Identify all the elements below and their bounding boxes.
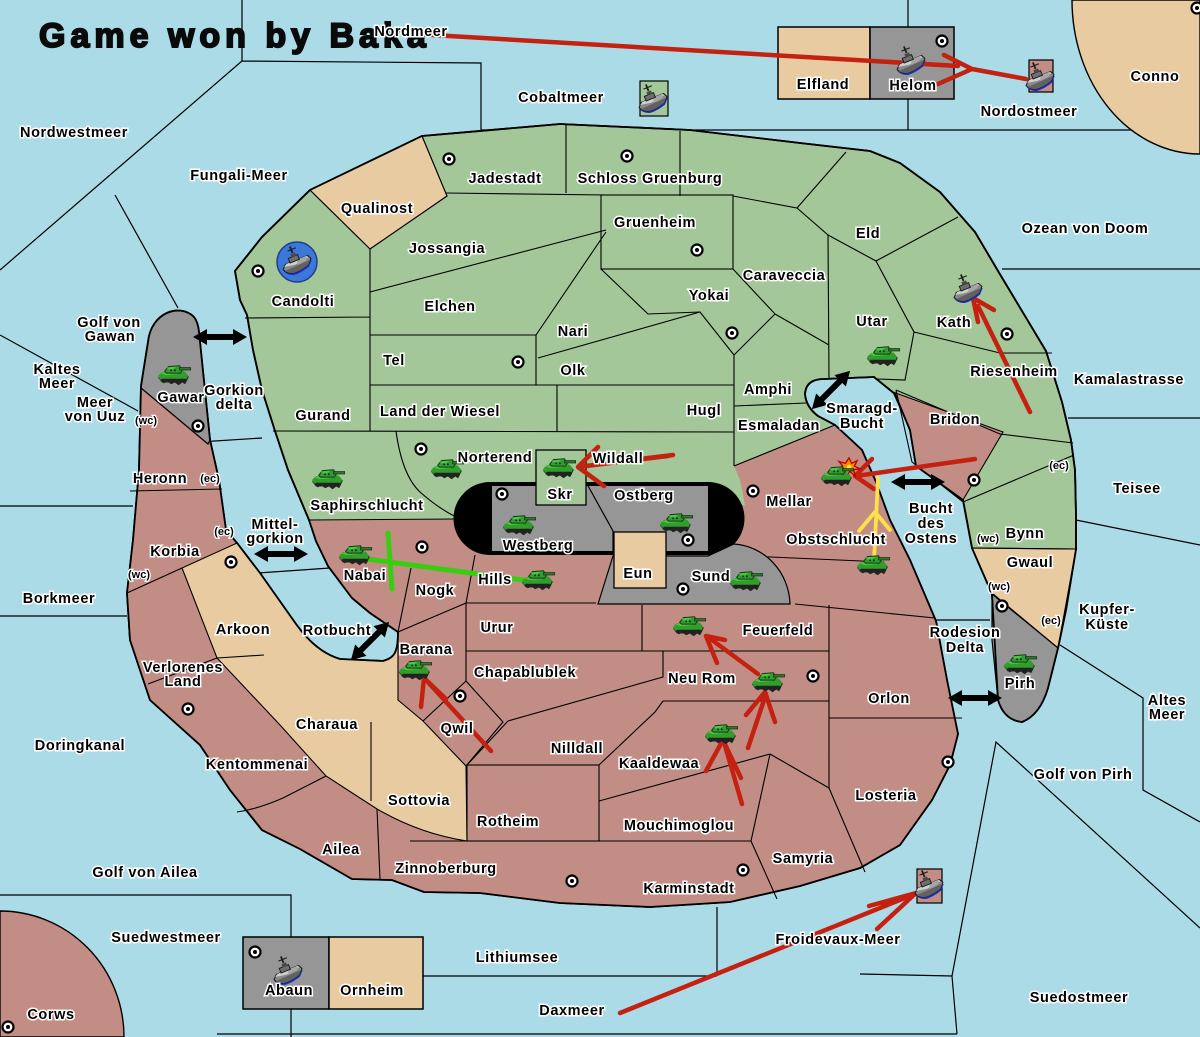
svg-text:gorkion: gorkion <box>246 531 303 547</box>
svg-text:Golf von Ailea: Golf von Ailea <box>92 865 198 881</box>
svg-text:Suedwestmeer: Suedwestmeer <box>111 930 221 946</box>
svg-text:Daxmeer: Daxmeer <box>539 1003 604 1019</box>
svg-text:Losteria: Losteria <box>855 788 917 804</box>
svg-text:Sund: Sund <box>692 569 731 585</box>
svg-text:Riesenheim: Riesenheim <box>970 364 1057 380</box>
svg-text:Elchen: Elchen <box>424 299 475 315</box>
svg-text:Yokai: Yokai <box>689 288 730 304</box>
svg-text:Nordostmeer: Nordostmeer <box>981 104 1078 120</box>
svg-text:Mouchimoglou: Mouchimoglou <box>624 818 734 834</box>
svg-text:(ec): (ec) <box>1049 460 1069 472</box>
svg-text:Nordwestmeer: Nordwestmeer <box>20 125 128 141</box>
svg-text:Kentommenai: Kentommenai <box>206 757 308 773</box>
svg-text:Kaaldewaa: Kaaldewaa <box>619 756 700 772</box>
svg-text:Olk: Olk <box>560 363 586 379</box>
svg-text:Norterend: Norterend <box>458 450 533 466</box>
svg-text:Teisee: Teisee <box>1113 481 1161 497</box>
svg-text:(wc): (wc) <box>988 581 1010 593</box>
svg-text:Obstschlucht: Obstschlucht <box>786 532 886 548</box>
svg-text:Conno: Conno <box>1131 69 1180 85</box>
svg-text:Land der Wiesel: Land der Wiesel <box>380 404 500 420</box>
svg-text:Chapablublek: Chapablublek <box>474 665 577 681</box>
svg-text:Amphi: Amphi <box>744 382 792 398</box>
svg-text:Qwil: Qwil <box>440 721 473 737</box>
svg-text:Esmaladan: Esmaladan <box>738 418 820 434</box>
svg-text:Gwaul: Gwaul <box>1007 555 1054 571</box>
svg-text:Küste: Küste <box>1085 617 1128 633</box>
svg-text:Utar: Utar <box>856 314 887 330</box>
svg-text:(ec): (ec) <box>1041 615 1061 627</box>
svg-text:Gurand: Gurand <box>295 408 350 424</box>
svg-text:Helom: Helom <box>889 78 936 94</box>
svg-text:Kath: Kath <box>937 315 972 331</box>
svg-text:Qualinost: Qualinost <box>341 201 413 217</box>
svg-text:Barana: Barana <box>400 642 453 658</box>
svg-text:Fungali-Meer: Fungali-Meer <box>190 168 287 184</box>
svg-text:Sottovia: Sottovia <box>388 793 450 809</box>
svg-text:Cobaltmeer: Cobaltmeer <box>518 90 604 106</box>
svg-text:Samyria: Samyria <box>773 851 834 867</box>
svg-text:des: des <box>918 516 945 532</box>
svg-text:Nari: Nari <box>558 324 589 340</box>
svg-text:Bucht: Bucht <box>909 501 953 517</box>
svg-text:Ozean von Doom: Ozean von Doom <box>1022 221 1149 237</box>
svg-text:Ostens: Ostens <box>905 531 958 547</box>
svg-text:Eld: Eld <box>856 226 880 242</box>
svg-text:(wc): (wc) <box>977 533 999 545</box>
svg-text:(wc): (wc) <box>128 569 150 581</box>
svg-text:Ailea: Ailea <box>322 842 360 858</box>
svg-text:Hills: Hills <box>478 572 512 588</box>
svg-text:Bridon: Bridon <box>930 412 980 428</box>
svg-text:(wc): (wc) <box>135 415 157 427</box>
svg-text:Orlon: Orlon <box>868 691 910 707</box>
svg-text:Charaua: Charaua <box>296 717 359 733</box>
svg-text:Zinnoberburg: Zinnoberburg <box>395 861 496 877</box>
svg-text:Korbia: Korbia <box>150 544 200 560</box>
svg-text:Corws: Corws <box>27 1007 74 1023</box>
svg-text:Nabai: Nabai <box>344 568 387 584</box>
svg-text:Mellar: Mellar <box>766 494 812 510</box>
svg-text:Pirh: Pirh <box>1005 676 1036 692</box>
svg-text:Nordmeer: Nordmeer <box>374 24 447 40</box>
svg-text:Candolti: Candolti <box>272 294 335 310</box>
svg-text:Kamalastrasse: Kamalastrasse <box>1074 372 1184 388</box>
svg-text:Delta: Delta <box>946 640 985 656</box>
svg-text:Tel: Tel <box>383 353 405 369</box>
svg-text:Nogk: Nogk <box>416 583 455 599</box>
svg-text:Caraveccia: Caraveccia <box>743 268 826 284</box>
svg-text:Jadestadt: Jadestadt <box>468 171 541 187</box>
svg-text:Heronn: Heronn <box>133 471 187 487</box>
svg-text:Borkmeer: Borkmeer <box>23 591 96 607</box>
svg-text:Bynn: Bynn <box>1006 526 1045 542</box>
svg-text:Ostberg: Ostberg <box>614 488 674 504</box>
svg-text:Schloss Gruenburg: Schloss Gruenburg <box>578 171 723 187</box>
svg-text:Froidevaux-Meer: Froidevaux-Meer <box>775 932 900 948</box>
svg-text:Meer: Meer <box>39 376 75 392</box>
svg-text:Gawan: Gawan <box>85 329 136 345</box>
svg-text:(ec): (ec) <box>200 473 220 485</box>
svg-text:Rotheim: Rotheim <box>477 814 539 830</box>
svg-text:Nilldall: Nilldall <box>551 741 603 757</box>
svg-text:Feuerfeld: Feuerfeld <box>743 623 814 639</box>
svg-text:(ec): (ec) <box>214 526 234 538</box>
svg-text:Eun: Eun <box>623 566 652 582</box>
svg-text:Arkoon: Arkoon <box>216 622 270 638</box>
svg-text:Golf von Pirh: Golf von Pirh <box>1034 767 1133 783</box>
svg-text:Land: Land <box>164 674 201 690</box>
svg-text:Abaun: Abaun <box>265 983 313 999</box>
svg-text:Karminstadt: Karminstadt <box>643 881 734 897</box>
svg-text:Saphirschlucht: Saphirschlucht <box>310 498 423 514</box>
svg-text:von Uuz: von Uuz <box>65 409 126 425</box>
svg-text:Rotbucht: Rotbucht <box>303 623 371 639</box>
svg-text:Urur: Urur <box>480 620 513 636</box>
svg-text:delta: delta <box>216 397 253 413</box>
svg-text:Lithiumsee: Lithiumsee <box>476 950 559 966</box>
svg-text:Gawar: Gawar <box>157 390 204 406</box>
svg-text:Meer: Meer <box>1149 707 1185 723</box>
svg-text:Neu Rom: Neu Rom <box>668 671 736 687</box>
svg-text:Jossangia: Jossangia <box>409 241 486 257</box>
svg-text:Game won by Baka: Game won by Baka <box>39 17 431 55</box>
svg-text:Skr: Skr <box>547 487 572 503</box>
svg-text:Suedostmeer: Suedostmeer <box>1030 990 1128 1006</box>
svg-text:Elfland: Elfland <box>797 77 850 93</box>
svg-text:Smaragd-: Smaragd- <box>826 401 898 417</box>
svg-text:Doringkanal: Doringkanal <box>35 738 125 754</box>
svg-text:Bucht: Bucht <box>840 416 884 432</box>
svg-text:Westberg: Westberg <box>503 538 574 554</box>
svg-text:Ornheim: Ornheim <box>340 983 404 999</box>
svg-text:Hugl: Hugl <box>687 403 722 419</box>
svg-text:Wildall: Wildall <box>593 451 644 467</box>
svg-text:Gruenheim: Gruenheim <box>614 215 696 231</box>
svg-text:Kupfer-: Kupfer- <box>1079 602 1135 618</box>
svg-text:Rodesion: Rodesion <box>930 625 1001 641</box>
